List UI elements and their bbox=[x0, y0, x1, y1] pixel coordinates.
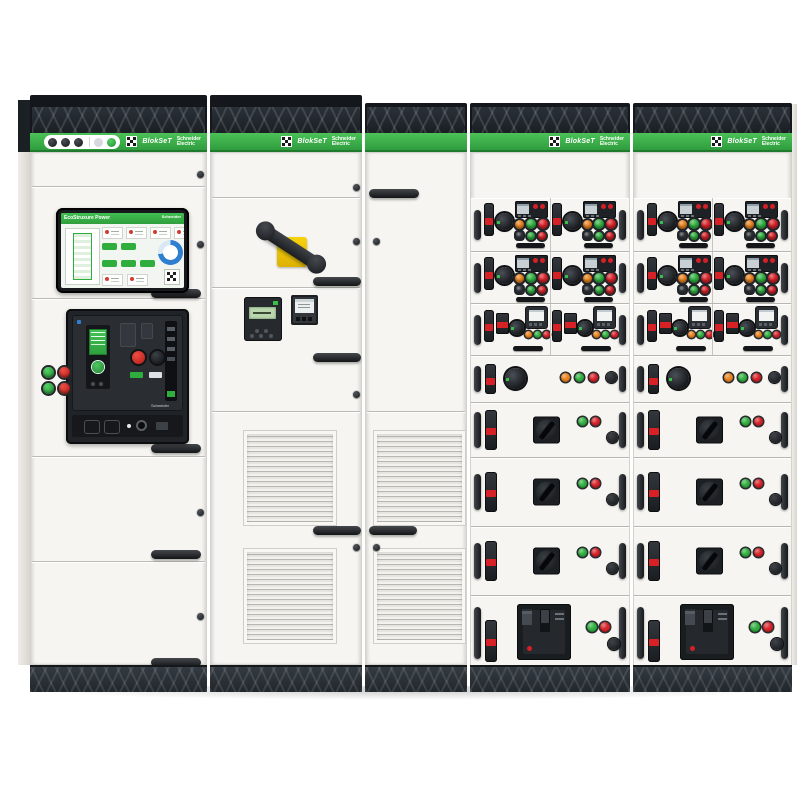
drawer-latch[interactable] bbox=[552, 203, 562, 236]
controller-display bbox=[747, 258, 759, 268]
drawer-latch[interactable] bbox=[714, 257, 724, 290]
aux-dark-button[interactable] bbox=[516, 286, 523, 293]
cam-switch[interactable] bbox=[696, 548, 723, 575]
cabinet-column-2-right-door bbox=[365, 95, 467, 692]
drawer-row bbox=[634, 526, 791, 595]
relay-status-led bbox=[273, 301, 278, 305]
grab-handle[interactable] bbox=[781, 607, 788, 659]
controller-leds bbox=[586, 269, 589, 271]
drawer-face bbox=[646, 198, 779, 251]
green-pilot-light bbox=[764, 331, 771, 338]
stop-button[interactable] bbox=[768, 273, 778, 283]
cabinet-column-1: BlokSeT Schneider Electric bbox=[30, 95, 207, 692]
drawer-unit bbox=[646, 252, 712, 303]
grab-handle[interactable] bbox=[474, 412, 481, 448]
breaker-handle-block[interactable] bbox=[659, 313, 672, 334]
drawer-pull-handle[interactable] bbox=[516, 297, 545, 302]
green-pushbutton[interactable] bbox=[43, 383, 54, 394]
left-side-panel-cap bbox=[18, 100, 30, 152]
stop-button[interactable] bbox=[606, 273, 616, 283]
quarter-turn-lock[interactable] bbox=[353, 238, 360, 245]
drawer-unit bbox=[646, 304, 712, 355]
quarter-turn-lock[interactable] bbox=[373, 238, 380, 245]
drawer-row bbox=[471, 355, 629, 402]
grab-handle[interactable] bbox=[781, 474, 788, 510]
drawer-pull-handle[interactable] bbox=[584, 243, 613, 248]
vent-grid bbox=[367, 107, 465, 133]
trip-unit bbox=[86, 325, 110, 389]
red-pilot-light bbox=[591, 548, 600, 557]
controller-button[interactable] bbox=[763, 204, 768, 209]
trip-button[interactable] bbox=[527, 646, 532, 651]
grab-handle[interactable] bbox=[474, 210, 481, 240]
meter-buttons[interactable] bbox=[692, 323, 707, 326]
breaker-handle-block[interactable] bbox=[496, 313, 509, 334]
controller-button[interactable] bbox=[770, 204, 775, 209]
drawer-latch[interactable] bbox=[714, 310, 724, 342]
aux-green-button[interactable] bbox=[757, 286, 765, 294]
drawer-pull-handle[interactable] bbox=[746, 243, 775, 248]
drawer-latch[interactable] bbox=[485, 472, 497, 512]
selector-dial[interactable] bbox=[510, 321, 524, 335]
green-pushbutton[interactable] bbox=[43, 367, 54, 378]
cam-switch[interactable] bbox=[533, 548, 560, 575]
controller-display bbox=[680, 258, 692, 268]
aux-dark-button[interactable] bbox=[746, 232, 753, 239]
grab-handle[interactable] bbox=[474, 263, 481, 293]
drawer-meter bbox=[594, 307, 615, 328]
red-pilot-light bbox=[754, 548, 763, 557]
selector-dial[interactable] bbox=[505, 368, 526, 389]
reset-button[interactable] bbox=[678, 274, 687, 283]
drawer-latch[interactable] bbox=[484, 257, 494, 290]
grab-handle[interactable] bbox=[781, 263, 788, 293]
controller-button[interactable] bbox=[540, 204, 545, 209]
controller-display bbox=[585, 204, 597, 214]
selector-dial[interactable] bbox=[673, 321, 687, 335]
stop-button[interactable] bbox=[768, 219, 778, 229]
selector-dial[interactable] bbox=[659, 213, 676, 230]
green-pilot-light bbox=[697, 331, 704, 338]
meter-dot-icon bbox=[61, 138, 70, 147]
drawer-pull-handle[interactable] bbox=[516, 243, 545, 248]
drawer-face bbox=[646, 304, 779, 355]
controller-button[interactable] bbox=[696, 204, 701, 209]
controller-button[interactable] bbox=[703, 204, 708, 209]
green-pilot-light bbox=[534, 331, 541, 338]
door-handle[interactable] bbox=[313, 353, 361, 362]
selector-dial[interactable] bbox=[659, 267, 676, 284]
hmi-status-row bbox=[102, 274, 148, 286]
test-pushbutton[interactable] bbox=[607, 563, 618, 574]
drawer-face bbox=[483, 198, 617, 251]
drawer-latch[interactable] bbox=[647, 203, 657, 236]
hmi-button[interactable] bbox=[102, 260, 117, 267]
selector-dial[interactable] bbox=[726, 213, 743, 230]
quarter-turn-lock[interactable] bbox=[197, 171, 204, 178]
grab-handle[interactable] bbox=[474, 543, 481, 579]
hmi-touchscreen[interactable]: EcoStruxure Power Schneider bbox=[61, 213, 184, 288]
aux-red-button[interactable] bbox=[538, 232, 546, 240]
drawer-latch[interactable] bbox=[485, 364, 496, 394]
drawer-latch[interactable] bbox=[484, 203, 494, 236]
selector-dial[interactable] bbox=[726, 267, 743, 284]
power-on-icon bbox=[107, 138, 116, 147]
grab-handle[interactable] bbox=[619, 366, 626, 392]
drawer-rows bbox=[634, 198, 791, 670]
controller-leds bbox=[748, 269, 751, 271]
selector-dial[interactable] bbox=[668, 368, 689, 389]
red-pilot-light bbox=[773, 331, 780, 338]
controller-button[interactable] bbox=[608, 204, 613, 209]
start-button[interactable] bbox=[756, 219, 766, 229]
aux-green-button[interactable] bbox=[757, 232, 765, 240]
green-pilot-light bbox=[750, 622, 760, 632]
top-cover bbox=[210, 95, 362, 133]
door-seam bbox=[212, 287, 360, 288]
grab-handle[interactable] bbox=[637, 210, 644, 240]
drawer-latch[interactable] bbox=[648, 472, 660, 512]
selector-dial[interactable] bbox=[496, 213, 513, 230]
drawer-unit bbox=[483, 252, 550, 303]
cabinet-column-3: BlokSeT Schneider Electric bbox=[470, 95, 630, 692]
drawer-pull-handle[interactable] bbox=[679, 297, 708, 302]
hmi-button[interactable] bbox=[102, 243, 117, 250]
push-off-button[interactable] bbox=[132, 351, 145, 364]
start-button[interactable] bbox=[526, 219, 536, 229]
stop-button[interactable] bbox=[538, 273, 548, 283]
hmi-button[interactable] bbox=[140, 260, 155, 267]
selector-dial[interactable] bbox=[740, 321, 754, 335]
drawer-face bbox=[483, 356, 617, 402]
switchboard-lineup: BlokSeT Schneider Electric bbox=[0, 0, 800, 800]
manufacturer-logo: Schneider Electric bbox=[177, 137, 201, 147]
test-pushbutton[interactable] bbox=[606, 372, 617, 383]
stop-button[interactable] bbox=[538, 219, 548, 229]
aux-dark-button[interactable] bbox=[584, 286, 591, 293]
indicator-pill bbox=[44, 135, 120, 149]
selector-dial[interactable] bbox=[564, 267, 581, 284]
start-button[interactable] bbox=[689, 273, 699, 283]
aux-green-button[interactable] bbox=[527, 232, 535, 240]
reset-button[interactable] bbox=[678, 220, 687, 229]
vent-grid bbox=[212, 107, 360, 133]
drawer-unit bbox=[712, 252, 779, 303]
brand-logos: BlokSeT Schneider Electric bbox=[711, 135, 786, 148]
drawer-latch[interactable] bbox=[648, 541, 660, 581]
grab-handle[interactable] bbox=[637, 412, 644, 448]
reset-button[interactable] bbox=[583, 274, 592, 283]
start-button[interactable] bbox=[689, 219, 699, 229]
drawer-pull-handle[interactable] bbox=[584, 297, 613, 302]
trip-button[interactable] bbox=[690, 646, 695, 651]
push-on-button[interactable] bbox=[151, 351, 164, 364]
controller-button[interactable] bbox=[601, 204, 606, 209]
drawer-face bbox=[483, 596, 617, 670]
plinth bbox=[470, 665, 630, 692]
grab-handle[interactable] bbox=[619, 263, 626, 293]
breaker-toggle[interactable] bbox=[703, 609, 713, 632]
grab-handle[interactable] bbox=[619, 474, 626, 510]
acb-face: Schneider bbox=[72, 315, 183, 411]
grab-handle[interactable] bbox=[781, 543, 788, 579]
grab-handle[interactable] bbox=[637, 543, 644, 579]
drawer-pull-handle[interactable] bbox=[676, 346, 706, 351]
red-pilot-light bbox=[589, 373, 598, 382]
meter-display bbox=[597, 310, 612, 321]
reset-button[interactable] bbox=[745, 274, 754, 283]
selector-dial[interactable] bbox=[564, 213, 581, 230]
crank-socket[interactable] bbox=[136, 420, 147, 431]
red-pilot-light bbox=[754, 479, 763, 488]
red-pushbutton[interactable] bbox=[59, 383, 70, 394]
aux-green-button[interactable] bbox=[595, 286, 603, 294]
red-pilot-light bbox=[752, 373, 761, 382]
drawer-latch[interactable] bbox=[647, 257, 657, 290]
drawer-cells bbox=[483, 198, 617, 251]
meter-buttons[interactable] bbox=[529, 323, 544, 326]
orange-pilot-light bbox=[525, 331, 532, 338]
drawer-latch[interactable] bbox=[485, 410, 497, 450]
quarter-turn-lock[interactable] bbox=[197, 509, 204, 516]
drawer-pull-handle[interactable] bbox=[746, 297, 775, 302]
aux-dark-button[interactable] bbox=[516, 232, 523, 239]
door-handle[interactable] bbox=[313, 526, 361, 535]
cam-switch[interactable] bbox=[533, 479, 560, 506]
controller-button[interactable] bbox=[763, 258, 768, 263]
meter-buttons[interactable] bbox=[759, 323, 774, 326]
front-doors bbox=[365, 152, 467, 665]
meter-buttons[interactable] bbox=[296, 317, 313, 321]
aux-dark-button[interactable] bbox=[679, 232, 686, 239]
test-pushbutton[interactable] bbox=[607, 494, 618, 505]
ventilation-grille bbox=[374, 431, 465, 525]
test-pushbutton[interactable] bbox=[608, 638, 620, 650]
drawer-row bbox=[634, 355, 791, 402]
controller-button[interactable] bbox=[533, 204, 538, 209]
quarter-turn-lock[interactable] bbox=[353, 184, 360, 191]
aux-green-button[interactable] bbox=[527, 286, 535, 294]
aux-dark-button[interactable] bbox=[746, 286, 753, 293]
test-pushbutton[interactable] bbox=[770, 432, 781, 443]
drawer-unit bbox=[483, 304, 550, 355]
qr-code-icon bbox=[281, 136, 292, 147]
green-pilot-light bbox=[741, 417, 750, 426]
green-pilot-light bbox=[578, 417, 587, 426]
indicator-window bbox=[120, 323, 136, 347]
meter-dot-icon bbox=[48, 138, 57, 147]
relay-keypad[interactable] bbox=[255, 329, 259, 333]
selector-dial[interactable] bbox=[578, 321, 592, 335]
stop-button[interactable] bbox=[606, 219, 616, 229]
controller-button[interactable] bbox=[703, 258, 708, 263]
ventilation-grille bbox=[244, 549, 336, 643]
controller-display bbox=[680, 204, 692, 214]
drawer-meter bbox=[526, 307, 547, 328]
quarter-turn-lock[interactable] bbox=[353, 391, 360, 398]
hmi-button[interactable] bbox=[121, 260, 136, 267]
reset-button[interactable] bbox=[515, 220, 524, 229]
breaker-toggle[interactable] bbox=[540, 609, 550, 632]
grab-handle[interactable] bbox=[619, 412, 626, 448]
aux-dark-button[interactable] bbox=[584, 232, 591, 239]
drawer-latch[interactable] bbox=[648, 364, 659, 394]
selector-dial[interactable] bbox=[496, 267, 513, 284]
meter-buttons[interactable] bbox=[597, 323, 612, 326]
logo-line2: Electric bbox=[177, 141, 195, 147]
relay-lcd bbox=[249, 307, 276, 319]
brand-logos: BlokSeT Schneider Electric bbox=[126, 135, 201, 148]
right-side-panel bbox=[792, 104, 797, 665]
start-button[interactable] bbox=[756, 273, 766, 283]
drawer-row bbox=[471, 595, 629, 670]
aux-red-button[interactable] bbox=[768, 232, 776, 240]
brand-band: BlokSeT Schneider Electric bbox=[633, 133, 792, 152]
green-pilot-light bbox=[738, 373, 747, 382]
racking-socket[interactable] bbox=[84, 420, 100, 434]
hmi-button[interactable] bbox=[121, 243, 136, 250]
grab-handle[interactable] bbox=[619, 543, 626, 579]
red-pushbutton[interactable] bbox=[59, 367, 70, 378]
motor-controller-unit bbox=[583, 201, 616, 218]
test-pushbutton[interactable] bbox=[770, 563, 781, 574]
door-handle[interactable] bbox=[313, 277, 361, 286]
aux-red-button[interactable] bbox=[606, 286, 614, 294]
aux-green-button[interactable] bbox=[690, 286, 698, 294]
grab-handle[interactable] bbox=[781, 315, 788, 345]
stop-button[interactable] bbox=[701, 273, 711, 283]
door-pushbutton-cluster bbox=[43, 367, 70, 394]
drawer-row bbox=[634, 198, 791, 251]
stop-button[interactable] bbox=[701, 219, 711, 229]
grab-handle[interactable] bbox=[619, 607, 626, 659]
grab-handle[interactable] bbox=[619, 315, 626, 345]
grab-handle[interactable] bbox=[781, 412, 788, 448]
door-handle[interactable] bbox=[151, 444, 201, 453]
grab-handle[interactable] bbox=[637, 315, 644, 345]
drawer-latch[interactable] bbox=[648, 410, 660, 450]
drawer-pull-handle[interactable] bbox=[679, 243, 708, 248]
test-pushbutton[interactable] bbox=[771, 638, 783, 650]
test-pushbutton[interactable] bbox=[607, 432, 618, 443]
grab-handle[interactable] bbox=[474, 315, 481, 345]
grab-handle[interactable] bbox=[781, 210, 788, 240]
trip-unit-keys[interactable] bbox=[91, 382, 95, 386]
quarter-turn-lock[interactable] bbox=[197, 613, 204, 620]
controller-button[interactable] bbox=[770, 258, 775, 263]
cam-switch[interactable] bbox=[533, 417, 560, 444]
drawer-latch[interactable] bbox=[485, 541, 497, 581]
drawer-pull-handle[interactable] bbox=[581, 346, 611, 351]
door-handle[interactable] bbox=[369, 189, 419, 198]
grab-handle[interactable] bbox=[637, 474, 644, 510]
qr-code-icon bbox=[549, 136, 560, 147]
breaker-handle-block[interactable] bbox=[726, 313, 739, 334]
aux-dark-button[interactable] bbox=[679, 286, 686, 293]
aux-red-button[interactable] bbox=[768, 286, 776, 294]
switchboard-schematic bbox=[65, 228, 100, 285]
controller-leds bbox=[586, 215, 589, 217]
drawer-latch[interactable] bbox=[648, 620, 660, 662]
drawer-latch[interactable] bbox=[647, 310, 657, 342]
status-led bbox=[77, 320, 81, 324]
grab-handle[interactable] bbox=[474, 474, 481, 510]
controller-button[interactable] bbox=[608, 258, 613, 263]
racking-socket[interactable] bbox=[104, 420, 120, 434]
logo-line2: Electric bbox=[762, 141, 780, 147]
brand-band bbox=[365, 133, 467, 152]
grab-handle[interactable] bbox=[637, 366, 644, 392]
controller-button[interactable] bbox=[601, 258, 606, 263]
controller-button[interactable] bbox=[540, 258, 545, 263]
drawer-latch[interactable] bbox=[714, 203, 724, 236]
reset-button[interactable] bbox=[515, 274, 524, 283]
trip-unit-display[interactable] bbox=[89, 329, 107, 355]
breaker-handle-block[interactable] bbox=[564, 313, 577, 334]
drawer-latch[interactable] bbox=[485, 620, 497, 662]
drawer-face bbox=[483, 458, 617, 526]
grab-handle[interactable] bbox=[474, 366, 481, 392]
controller-button[interactable] bbox=[696, 258, 701, 263]
drawer-pull-handle[interactable] bbox=[513, 346, 543, 351]
acb-brand-text: Schneider bbox=[72, 403, 169, 408]
cam-switch[interactable] bbox=[696, 417, 723, 444]
reset-button[interactable] bbox=[745, 220, 754, 229]
aux-green-button[interactable] bbox=[595, 232, 603, 240]
motor-controller-unit bbox=[678, 201, 711, 218]
drawer-latch[interactable] bbox=[552, 257, 562, 290]
aux-red-button[interactable] bbox=[701, 232, 709, 240]
aux-red-button[interactable] bbox=[538, 286, 546, 294]
test-pushbutton[interactable] bbox=[769, 372, 780, 383]
drawer-unit bbox=[550, 304, 618, 355]
drawer-pull-handle[interactable] bbox=[743, 346, 773, 351]
start-button[interactable] bbox=[526, 273, 536, 283]
aux-red-button[interactable] bbox=[606, 232, 614, 240]
quarter-turn-lock[interactable] bbox=[373, 544, 380, 551]
drawer-latch[interactable] bbox=[552, 310, 562, 342]
plinth bbox=[30, 665, 207, 692]
grab-handle[interactable] bbox=[781, 366, 788, 392]
cam-switch[interactable] bbox=[696, 479, 723, 506]
motor-controller-unit bbox=[678, 255, 711, 272]
grab-handle[interactable] bbox=[474, 607, 481, 659]
door-handle[interactable] bbox=[151, 550, 201, 559]
controller-button[interactable] bbox=[533, 258, 538, 263]
door-seam bbox=[212, 411, 360, 412]
grab-handle[interactable] bbox=[619, 210, 626, 240]
controller-leds bbox=[518, 215, 521, 217]
quarter-turn-lock[interactable] bbox=[197, 241, 204, 248]
drawer-latch[interactable] bbox=[484, 310, 494, 342]
aux-red-button[interactable] bbox=[701, 286, 709, 294]
aux-green-button[interactable] bbox=[690, 232, 698, 240]
position-dot bbox=[127, 424, 131, 428]
plinth bbox=[210, 665, 362, 692]
start-button[interactable] bbox=[594, 219, 604, 229]
door-handle[interactable] bbox=[369, 526, 417, 535]
red-pilot-light bbox=[611, 331, 618, 338]
quarter-turn-lock[interactable] bbox=[353, 544, 360, 551]
test-pushbutton[interactable] bbox=[770, 494, 781, 505]
drawer-row bbox=[634, 595, 791, 670]
start-button[interactable] bbox=[594, 273, 604, 283]
reset-button[interactable] bbox=[583, 220, 592, 229]
drawer-row bbox=[471, 251, 629, 303]
grab-handle[interactable] bbox=[637, 263, 644, 293]
grab-handle[interactable] bbox=[637, 607, 644, 659]
drawer-rows bbox=[471, 198, 629, 670]
